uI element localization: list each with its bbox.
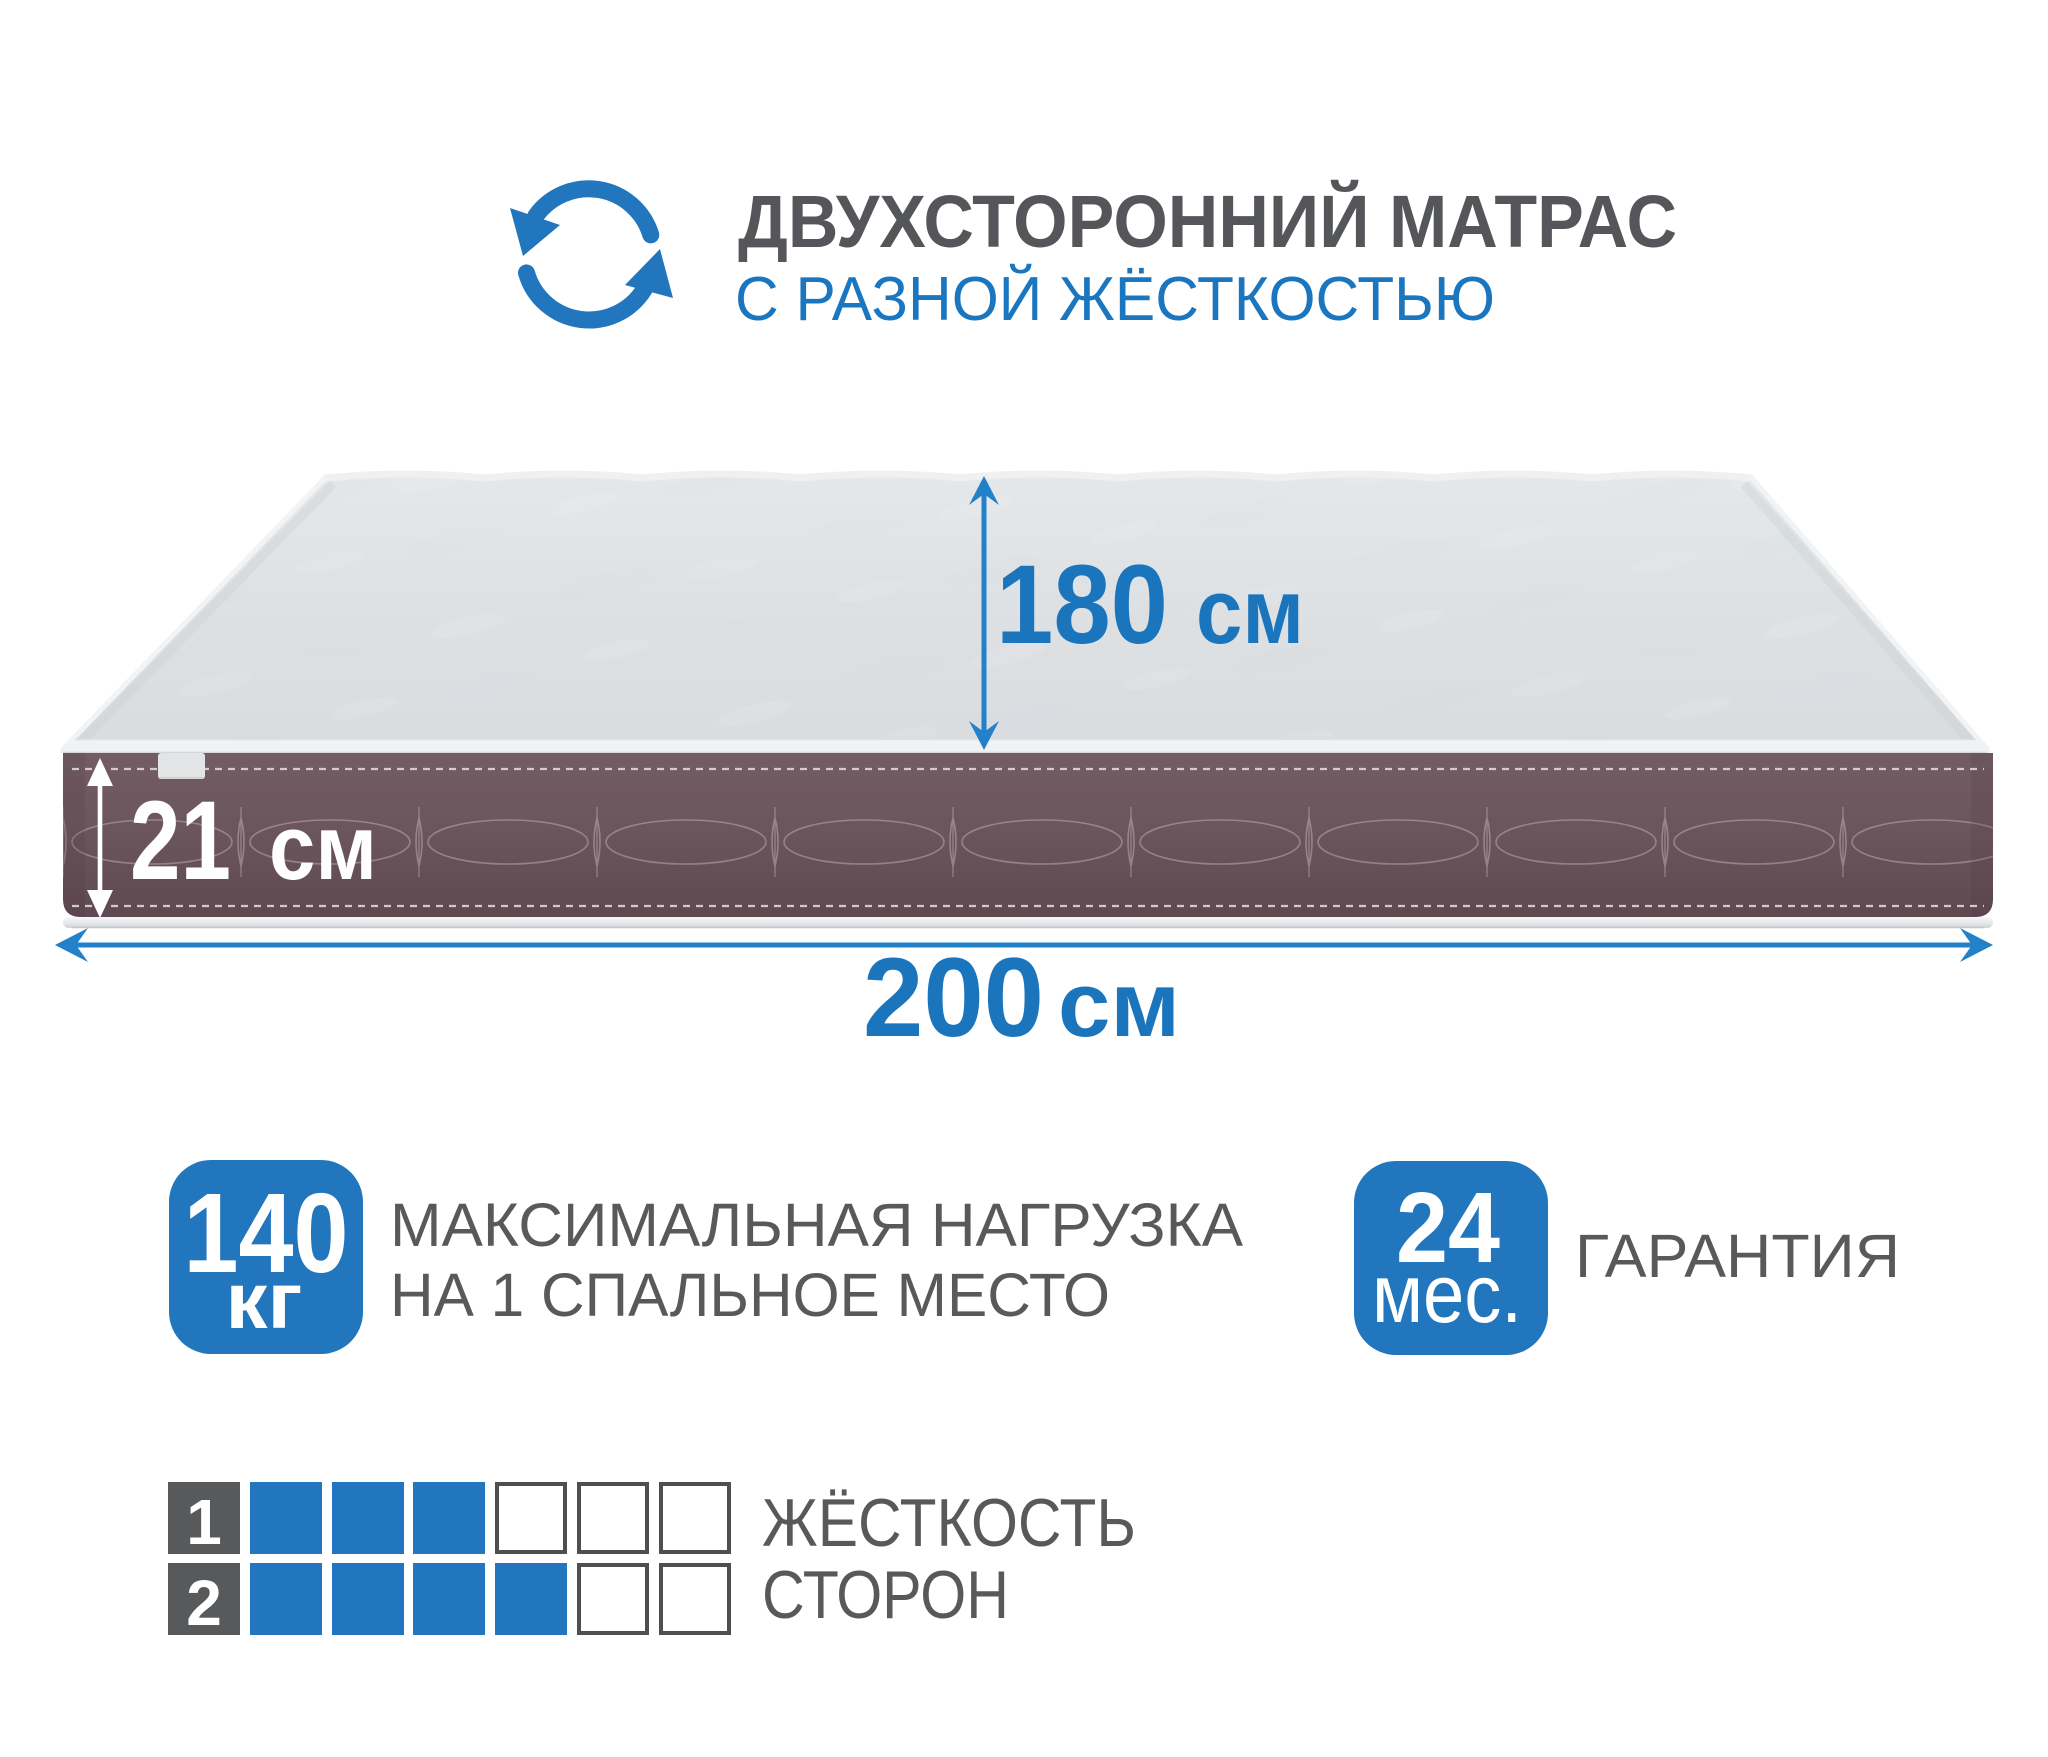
svg-text:см: см — [269, 797, 377, 899]
svg-text:см: см — [1058, 954, 1180, 1056]
svg-text:НА 1 СПАЛЬНОЕ МЕСТО: НА 1 СПАЛЬНОЕ МЕСТО — [390, 1261, 1110, 1330]
svg-text:180: 180 — [996, 542, 1168, 667]
svg-text:СТОРОН: СТОРОН — [762, 1557, 1009, 1633]
svg-text:ГАРАНТИЯ: ГАРАНТИЯ — [1575, 1222, 1900, 1291]
svg-text:1: 1 — [186, 1486, 222, 1558]
svg-text:см: см — [1196, 561, 1304, 663]
svg-text:ЖЁСТКОСТЬ: ЖЁСТКОСТЬ — [762, 1485, 1136, 1561]
svg-text:200: 200 — [863, 935, 1044, 1060]
svg-text:МАКСИМАЛЬНАЯ НАГРУЗКА: МАКСИМАЛЬНАЯ НАГРУЗКА — [390, 1191, 1243, 1260]
svg-text:ДВУХСТОРОННИЙ МАТРАС: ДВУХСТОРОННИЙ МАТРАС — [738, 179, 1677, 263]
svg-text:мес.: мес. — [1372, 1247, 1522, 1340]
svg-text:кг: кг — [226, 1256, 303, 1345]
svg-text:21: 21 — [130, 778, 231, 903]
svg-text:2: 2 — [186, 1567, 222, 1639]
svg-text:С РАЗНОЙ ЖЁСТКОСТЬЮ: С РАЗНОЙ ЖЁСТКОСТЬЮ — [735, 263, 1495, 334]
